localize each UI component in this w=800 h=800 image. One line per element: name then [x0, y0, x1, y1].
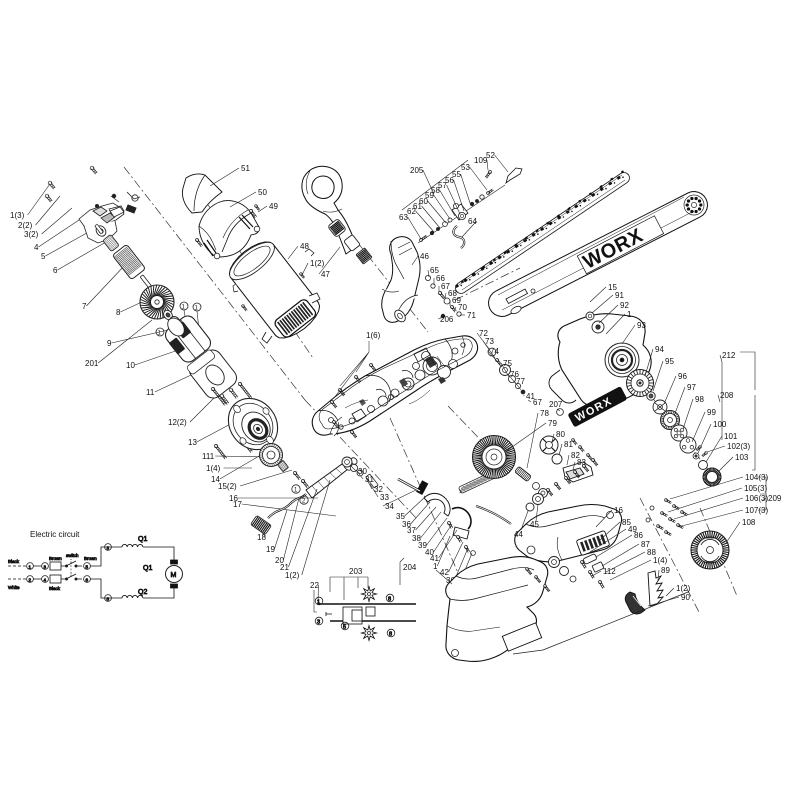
svg-text:Brown: Brown — [84, 556, 97, 561]
svg-text:33: 33 — [380, 493, 389, 502]
svg-text:100: 100 — [713, 420, 727, 429]
svg-text:201: 201 — [85, 359, 99, 368]
svg-text:10: 10 — [126, 361, 135, 370]
svg-text:1(4): 1(4) — [206, 464, 221, 473]
svg-text:73: 73 — [485, 337, 494, 346]
svg-text:112: 112 — [603, 567, 616, 576]
svg-text:107(3): 107(3) — [745, 506, 768, 515]
svg-text:91: 91 — [615, 291, 624, 300]
svg-text:19: 19 — [266, 545, 275, 554]
svg-text:44: 44 — [514, 530, 523, 539]
svg-text:11: 11 — [146, 388, 155, 397]
svg-text:99: 99 — [707, 408, 716, 417]
svg-text:71: 71 — [467, 311, 476, 320]
svg-text:1(2): 1(2) — [310, 259, 325, 268]
svg-text:79: 79 — [548, 419, 557, 428]
svg-text:34: 34 — [385, 502, 394, 511]
svg-text:45: 45 — [530, 520, 539, 529]
svg-text:209: 209 — [768, 494, 782, 503]
svg-text:103: 103 — [735, 453, 749, 462]
svg-text:3(2): 3(2) — [24, 230, 39, 239]
svg-text:1(2): 1(2) — [285, 571, 300, 580]
svg-text:75: 75 — [503, 359, 512, 368]
svg-text:97: 97 — [687, 383, 696, 392]
svg-text:5: 5 — [41, 252, 46, 261]
svg-text:12(2): 12(2) — [168, 418, 187, 427]
svg-text:2(2): 2(2) — [18, 221, 33, 230]
svg-text:104(3): 104(3) — [745, 473, 768, 482]
svg-text:M: M — [171, 572, 177, 579]
svg-text:47: 47 — [321, 270, 330, 279]
svg-text:1(3): 1(3) — [10, 211, 25, 220]
svg-text:16: 16 — [614, 506, 623, 515]
svg-text:8: 8 — [116, 308, 121, 317]
svg-text:Q1: Q1 — [138, 536, 147, 543]
svg-text:108: 108 — [742, 518, 756, 527]
svg-text:92: 92 — [620, 301, 629, 310]
svg-text:8: 8 — [389, 632, 392, 638]
svg-text:18: 18 — [257, 533, 266, 542]
svg-text:3: 3 — [317, 620, 320, 626]
svg-text:53: 53 — [461, 163, 470, 172]
svg-text:5: 5 — [343, 625, 346, 631]
svg-text:White: White — [8, 585, 20, 590]
svg-text:31: 31 — [365, 475, 374, 484]
svg-text:204: 204 — [403, 563, 417, 572]
svg-text:13: 13 — [188, 438, 197, 447]
svg-text:8: 8 — [388, 597, 391, 603]
svg-text:1: 1 — [433, 562, 438, 571]
svg-text:80: 80 — [556, 430, 565, 439]
svg-text:46: 46 — [420, 252, 429, 261]
svg-text:48: 48 — [300, 242, 309, 251]
svg-text:111: 111 — [202, 452, 215, 461]
svg-text:Brown: Brown — [49, 556, 62, 561]
svg-text:9: 9 — [107, 339, 112, 348]
svg-text:Q2: Q2 — [138, 589, 147, 596]
svg-text:49: 49 — [269, 202, 278, 211]
svg-text:52: 52 — [486, 151, 495, 160]
svg-text:7: 7 — [82, 302, 87, 311]
svg-text:1(2): 1(2) — [676, 584, 691, 593]
svg-text:102(3): 102(3) — [727, 442, 750, 451]
svg-text:105(3): 105(3) — [744, 484, 767, 493]
svg-text:63: 63 — [399, 213, 408, 222]
svg-text:101: 101 — [724, 432, 738, 441]
svg-text:206: 206 — [440, 315, 454, 324]
svg-text:15(2): 15(2) — [218, 482, 237, 491]
svg-text:77: 77 — [516, 377, 525, 386]
svg-text:96: 96 — [678, 372, 687, 381]
svg-text:205: 205 — [410, 166, 424, 175]
svg-text:78: 78 — [540, 409, 549, 418]
svg-text:4: 4 — [34, 243, 39, 252]
svg-text:98: 98 — [695, 395, 704, 404]
svg-text:1: 1 — [317, 600, 320, 606]
svg-text:94: 94 — [655, 345, 664, 354]
svg-text:203: 203 — [349, 567, 363, 576]
svg-text:95: 95 — [665, 357, 674, 366]
svg-text:62: 62 — [407, 207, 416, 216]
svg-text:6: 6 — [53, 266, 58, 275]
svg-text:17: 17 — [233, 500, 242, 509]
svg-text:89: 89 — [661, 566, 670, 575]
svg-text:Q1: Q1 — [143, 565, 152, 572]
svg-text:1: 1 — [627, 310, 632, 319]
svg-text:207: 207 — [549, 400, 563, 409]
svg-text:67: 67 — [533, 398, 542, 407]
svg-text:93: 93 — [637, 321, 646, 330]
svg-text:Black: Black — [8, 559, 20, 564]
svg-text:Black: Black — [49, 586, 61, 591]
svg-text:212: 212 — [722, 351, 736, 360]
svg-text:1(4): 1(4) — [653, 556, 668, 565]
svg-text:51: 51 — [241, 164, 250, 173]
svg-text:1(6): 1(6) — [366, 331, 381, 340]
svg-text:86: 86 — [634, 531, 643, 540]
svg-text:switch: switch — [66, 553, 79, 558]
svg-text:50: 50 — [258, 188, 267, 197]
svg-text:Electric circuit: Electric circuit — [30, 530, 80, 539]
